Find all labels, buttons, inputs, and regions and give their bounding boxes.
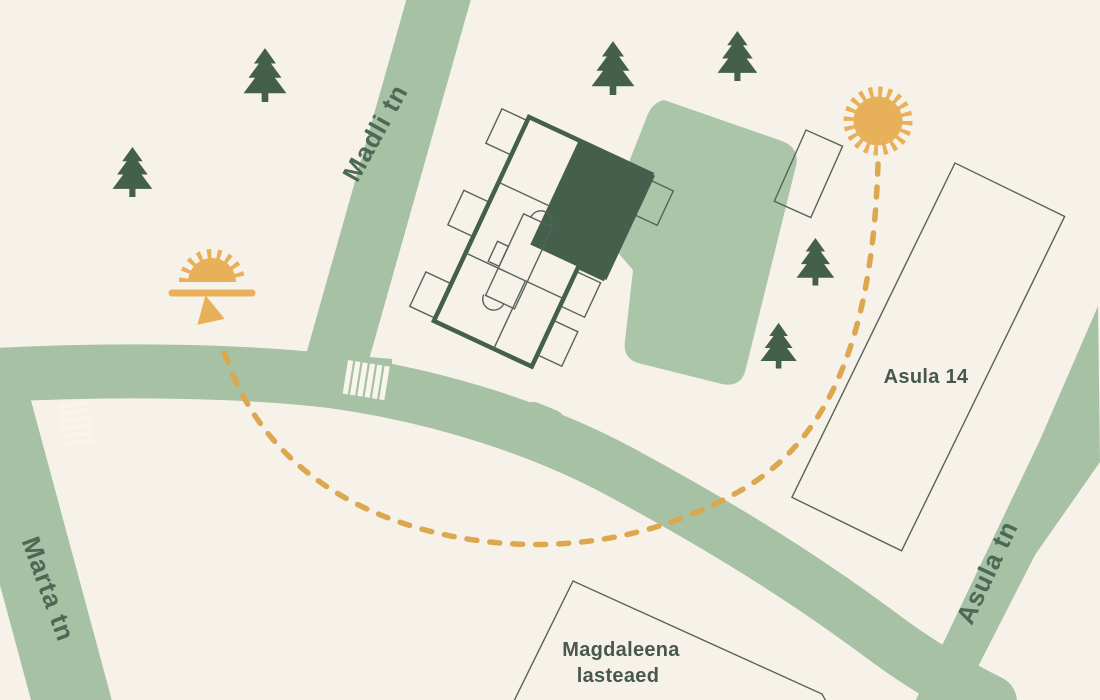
building-label-asula14: Asula 14 xyxy=(884,366,969,388)
illustrated-map: Madli tn Marta tn Asula tn Asula 14 Magd… xyxy=(0,0,1100,700)
map-canvas: Madli tn Marta tn Asula tn Asula 14 Magd… xyxy=(0,0,1100,700)
building-label-magdaleena-line1: Magdaleena xyxy=(562,639,680,661)
building-label-magdaleena-line2: lasteaed xyxy=(577,665,659,687)
